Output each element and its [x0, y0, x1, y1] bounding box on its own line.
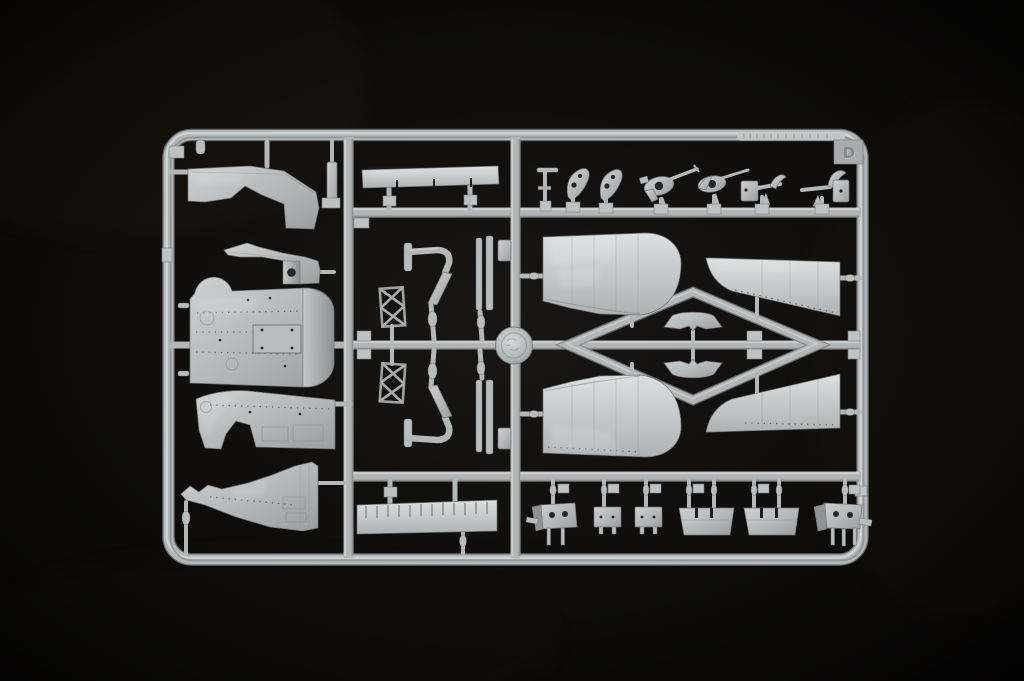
photo-frame: D D: [0, 0, 1024, 681]
vignette: [0, 0, 1024, 681]
